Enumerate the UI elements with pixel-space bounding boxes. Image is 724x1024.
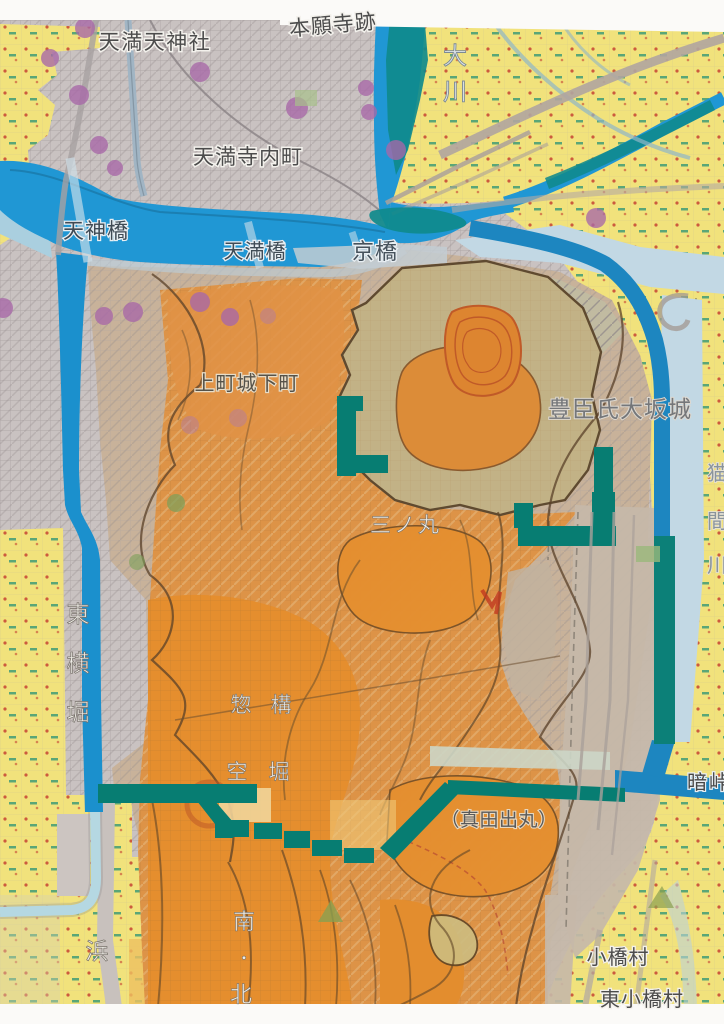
svg-text:天満橋: 天満橋 xyxy=(224,240,287,263)
svg-text:惣: 惣 xyxy=(231,693,252,717)
svg-text:猫: 猫 xyxy=(707,462,724,485)
svg-text:・: ・ xyxy=(236,951,252,968)
svg-text:川: 川 xyxy=(707,555,724,577)
svg-text:京橋: 京橋 xyxy=(352,239,398,264)
svg-text:南: 南 xyxy=(233,909,255,934)
svg-text:間: 間 xyxy=(707,511,724,533)
svg-text:豊臣氏大坂城: 豊臣氏大坂城 xyxy=(548,397,692,422)
svg-text:天満寺内町: 天満寺内町 xyxy=(193,145,303,169)
svg-text:大: 大 xyxy=(443,43,467,70)
svg-text:東: 東 xyxy=(67,602,90,627)
svg-text:暗峠: 暗峠 xyxy=(687,771,724,794)
svg-text:空: 空 xyxy=(227,760,248,784)
svg-text:上町城下町: 上町城下町 xyxy=(195,372,300,395)
svg-text:三ノ丸: 三ノ丸 xyxy=(370,513,442,537)
svg-text:横: 横 xyxy=(67,651,90,676)
svg-text:堀: 堀 xyxy=(269,760,290,784)
svg-text:小橋村: 小橋村 xyxy=(587,946,650,969)
svg-text:浜: 浜 xyxy=(86,939,109,964)
svg-text:天神橋: 天神橋 xyxy=(63,219,129,243)
svg-text:堀: 堀 xyxy=(67,700,90,725)
svg-text:（真田出丸）: （真田出丸） xyxy=(440,809,557,831)
svg-text:川: 川 xyxy=(443,80,467,106)
svg-text:東小橋村: 東小橋村 xyxy=(600,988,684,1011)
svg-text:天満天神社: 天満天神社 xyxy=(99,30,212,54)
svg-text:北: 北 xyxy=(230,982,252,1007)
svg-text:構: 構 xyxy=(271,693,292,717)
